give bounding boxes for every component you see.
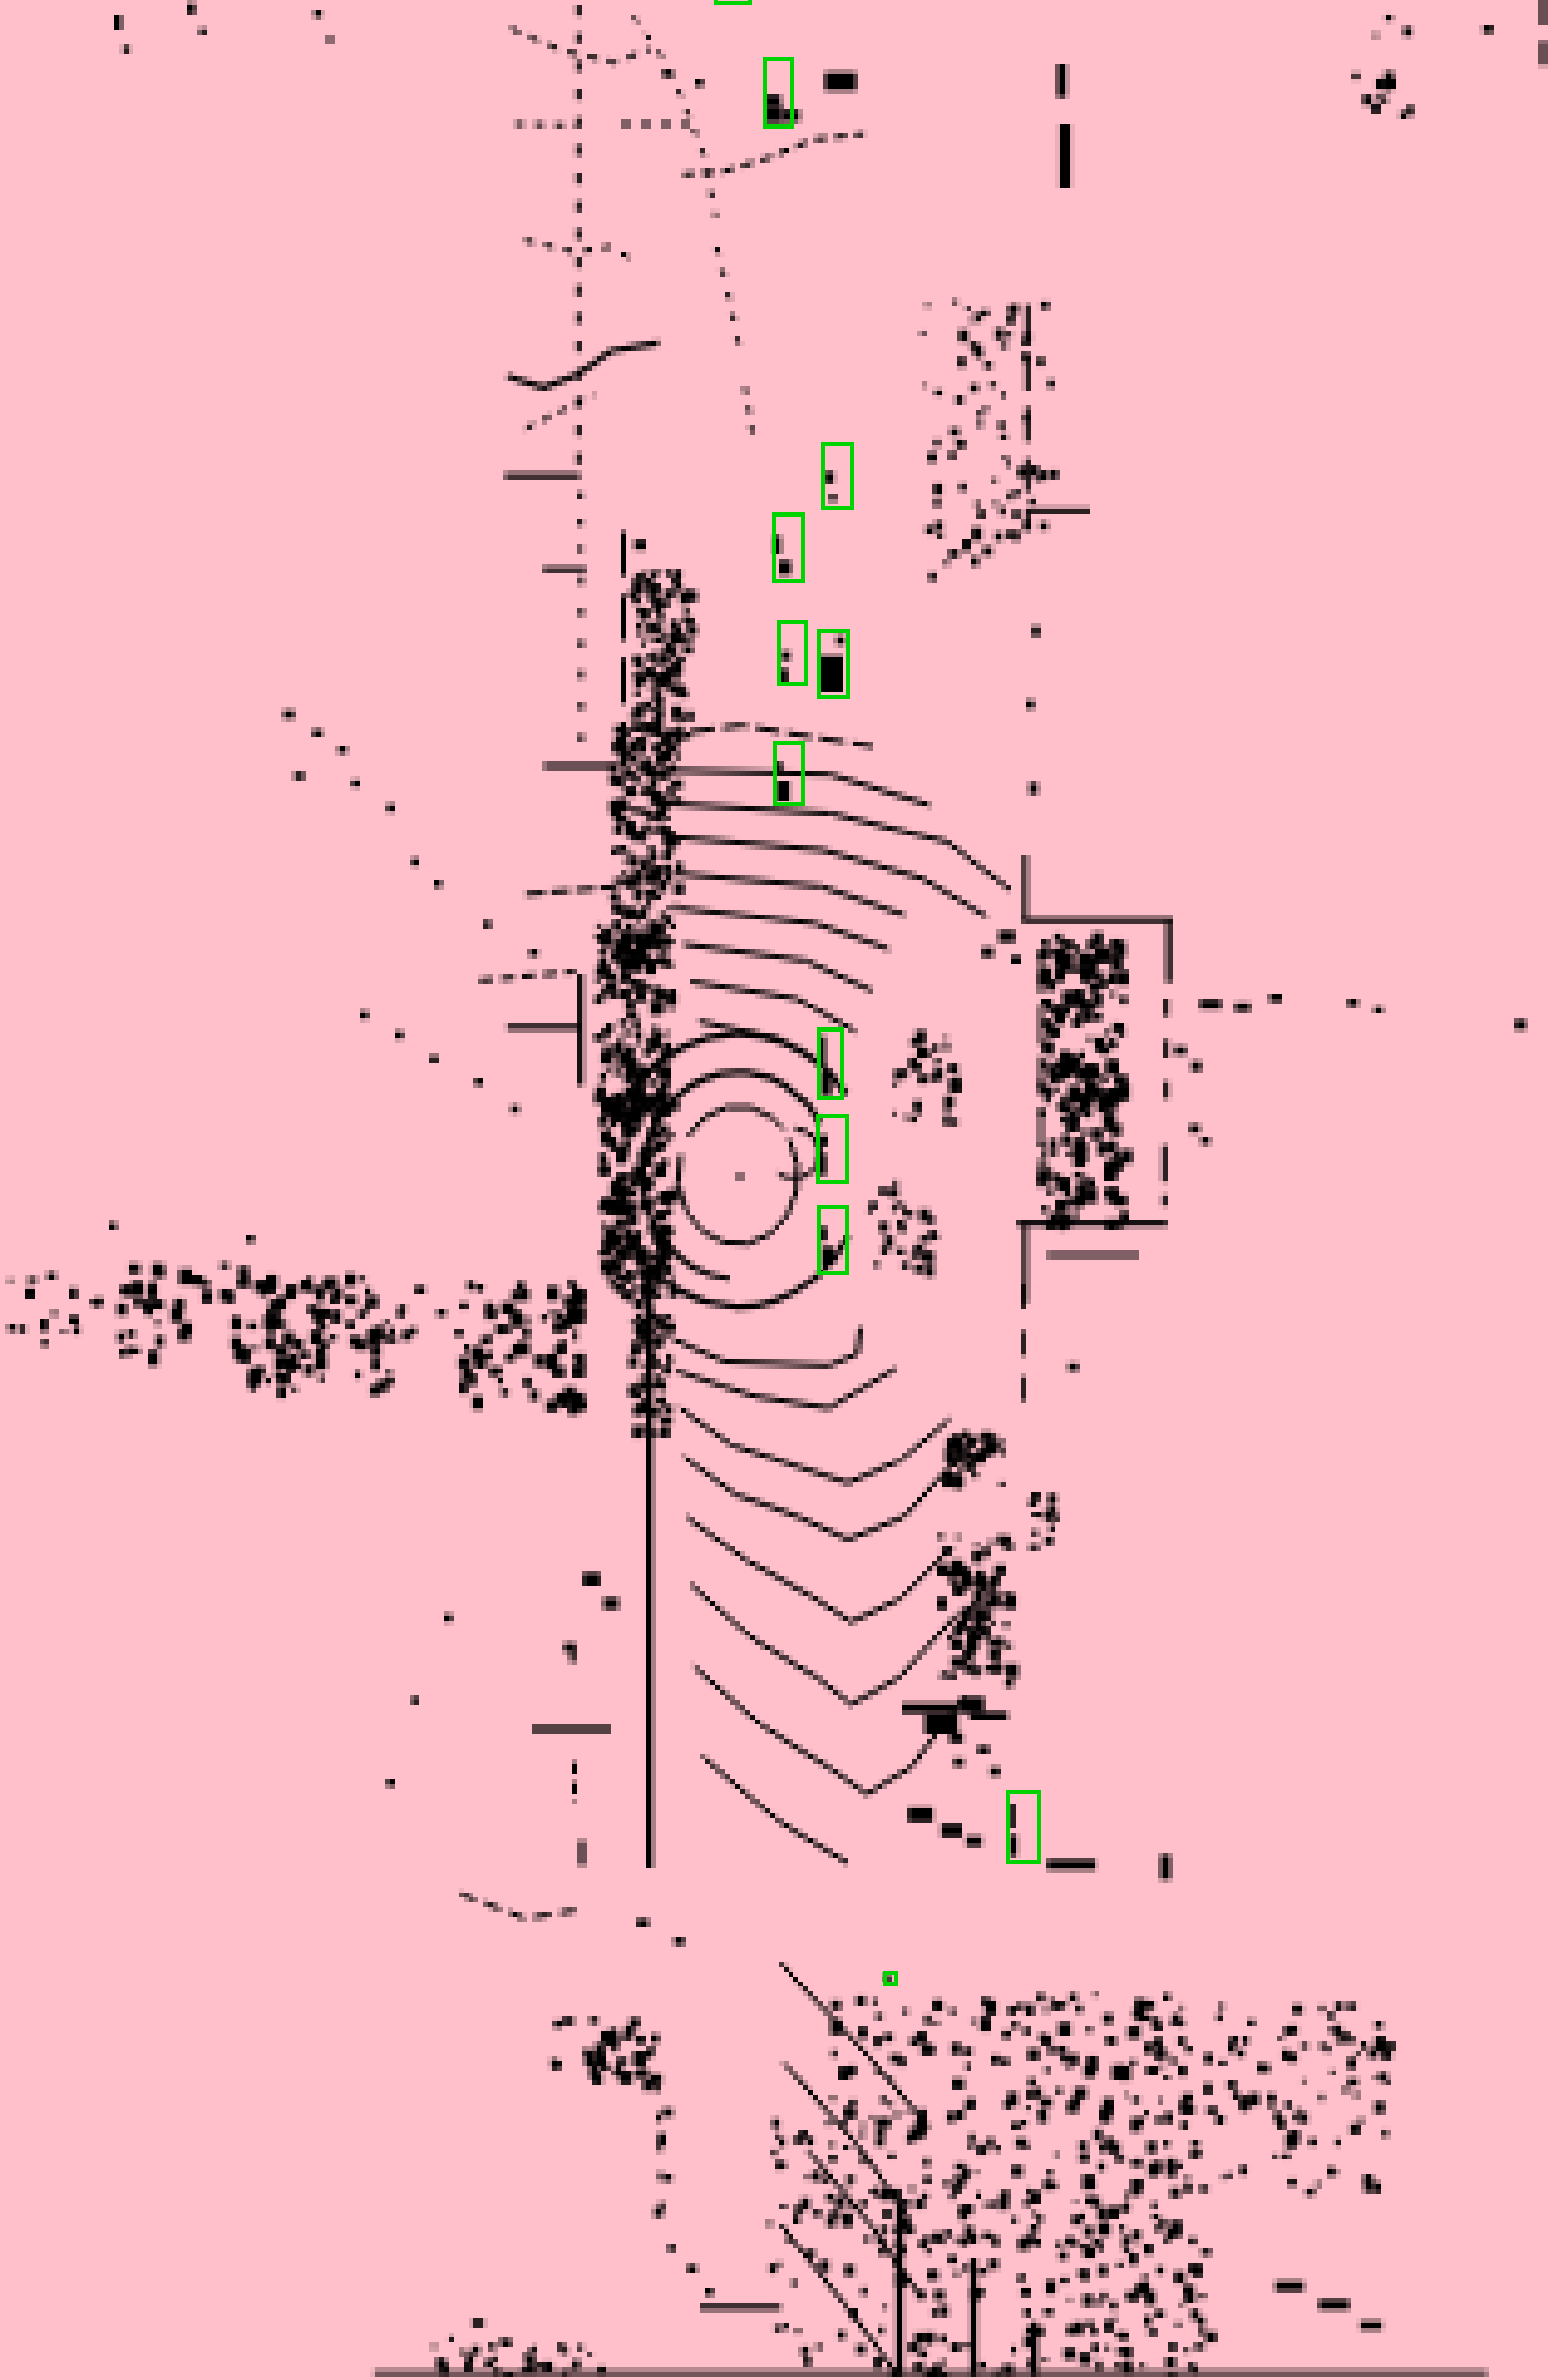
detection-box [763, 57, 794, 129]
detection-box [777, 620, 808, 686]
detection-box [772, 512, 805, 583]
detection-box [817, 629, 850, 699]
detection-box [1006, 1790, 1041, 1864]
detection-box [816, 1114, 849, 1184]
detection-box [714, 0, 752, 5]
detection-box [773, 741, 805, 806]
detection-box [821, 442, 854, 510]
detection-box [883, 1971, 898, 1986]
detection-box [817, 1027, 844, 1100]
detection-box [817, 1205, 849, 1275]
lidar-bev-view [0, 0, 1568, 2377]
detections-layer [0, 0, 1568, 2377]
